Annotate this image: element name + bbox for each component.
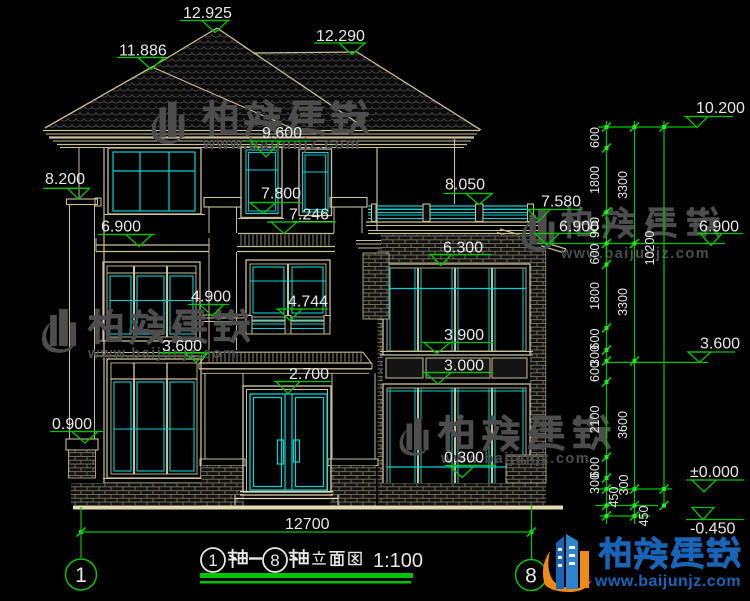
svg-text:8.050: 8.050 (445, 177, 485, 194)
svg-text:1800: 1800 (588, 282, 602, 310)
svg-text:8: 8 (270, 551, 279, 570)
svg-text:2.700: 2.700 (289, 366, 329, 383)
svg-text:300: 300 (617, 475, 631, 496)
svg-text:3300: 3300 (616, 171, 630, 199)
svg-text:7.246: 7.246 (289, 207, 329, 224)
svg-text:8: 8 (525, 565, 537, 588)
svg-text:0.300: 0.300 (444, 450, 484, 467)
svg-text:1: 1 (208, 551, 217, 570)
svg-text:-0.450: -0.450 (690, 521, 735, 538)
svg-text:2100: 2100 (588, 406, 602, 434)
svg-text:3300: 3300 (616, 288, 630, 316)
svg-text:0.900: 0.900 (52, 416, 92, 433)
svg-text:6.900: 6.900 (101, 219, 141, 236)
svg-text:7.800: 7.800 (261, 186, 301, 203)
svg-text:4.900: 4.900 (191, 289, 231, 306)
svg-text:3600: 3600 (616, 411, 630, 439)
svg-text:1: 1 (75, 564, 87, 587)
svg-text:4.744: 4.744 (288, 294, 328, 311)
svg-text:12700: 12700 (285, 516, 330, 533)
svg-text:450: 450 (637, 506, 651, 527)
svg-text:3.900: 3.900 (444, 327, 484, 344)
svg-text:8.200: 8.200 (45, 171, 85, 188)
svg-text:7.580: 7.580 (541, 194, 581, 211)
svg-text:±0.000: ±0.000 (690, 464, 739, 481)
svg-text:10200: 10200 (643, 231, 657, 266)
svg-text:10.200: 10.200 (696, 100, 745, 117)
svg-text:300: 300 (588, 473, 602, 494)
svg-text:www.baijunjz.com: www.baijunjz.com (594, 573, 741, 590)
svg-text:9.600: 9.600 (262, 125, 302, 142)
svg-text:12.925: 12.925 (183, 5, 232, 22)
svg-text:600: 600 (588, 244, 602, 265)
svg-text:600: 600 (588, 127, 602, 148)
svg-text:3.600: 3.600 (700, 336, 740, 353)
svg-text:1:100: 1:100 (373, 550, 423, 572)
svg-text:1800: 1800 (588, 166, 602, 194)
svg-text:900: 900 (588, 217, 602, 238)
svg-text:600: 600 (588, 361, 602, 382)
